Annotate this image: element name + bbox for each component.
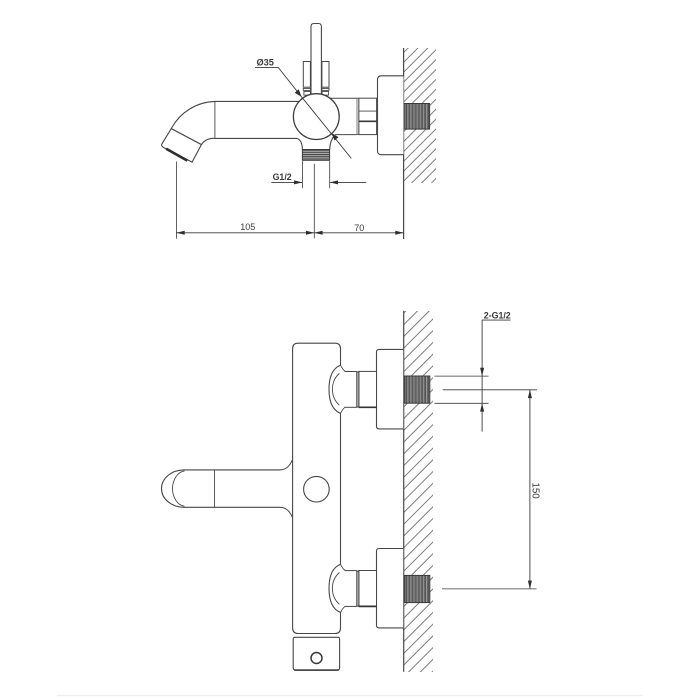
svg-text:105: 105 xyxy=(240,222,255,232)
svg-text:Ø35: Ø35 xyxy=(257,58,274,68)
svg-text:150: 150 xyxy=(529,482,540,499)
svg-text:2-G1/2: 2-G1/2 xyxy=(484,310,511,320)
svg-text:70: 70 xyxy=(354,223,364,233)
svg-text:G1/2: G1/2 xyxy=(273,172,292,182)
